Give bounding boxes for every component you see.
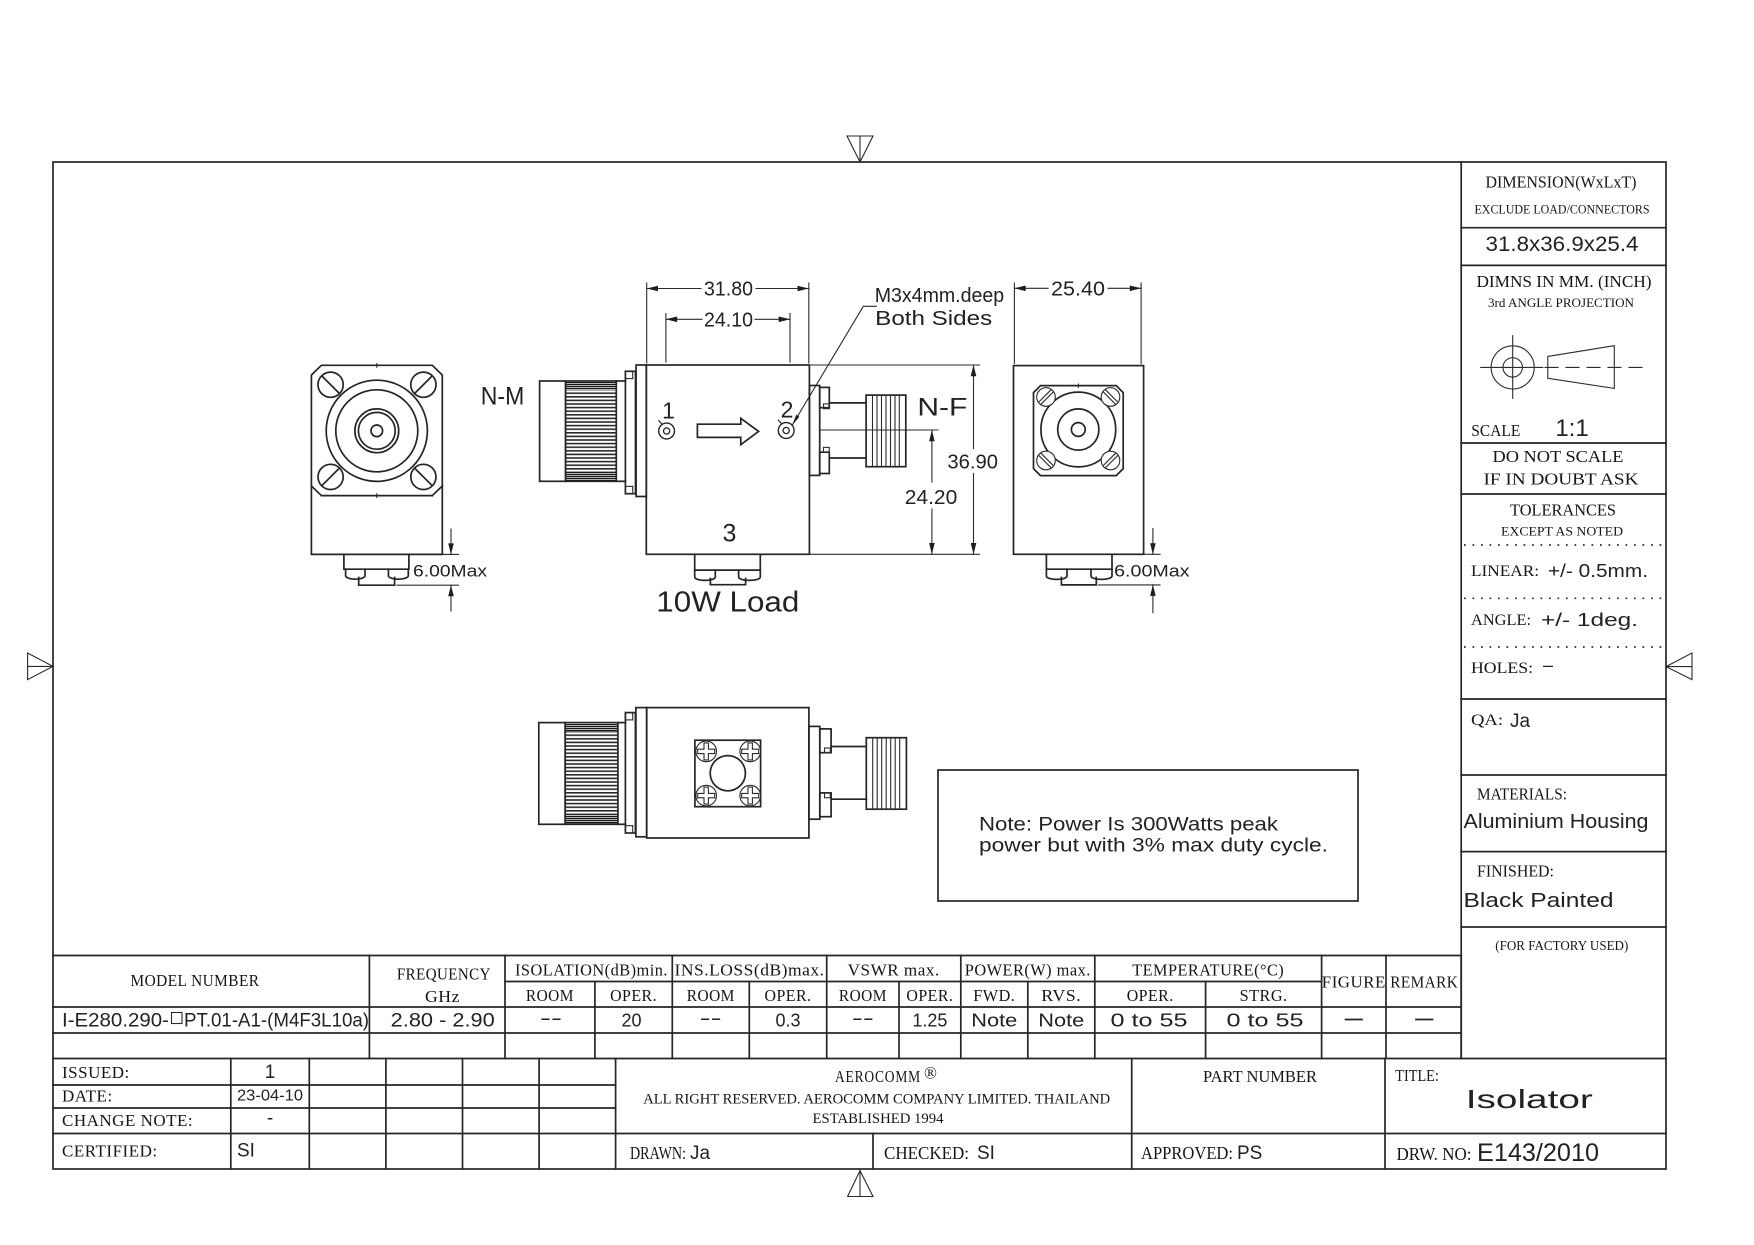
svg-text:SI: SI <box>977 1143 995 1164</box>
svg-text:3rd ANGLE PROJECTION: 3rd ANGLE PROJECTION <box>1488 295 1635 310</box>
svg-text:DO NOT SCALE: DO NOT SCALE <box>1493 447 1624 466</box>
svg-text:36.90: 36.90 <box>947 452 998 474</box>
svg-text:RVS.: RVS. <box>1041 986 1081 1005</box>
svg-text:VSWR max.: VSWR max. <box>848 960 940 979</box>
svg-text:TITLE:: TITLE: <box>1395 1066 1439 1085</box>
svg-text:SCALE: SCALE <box>1471 421 1520 440</box>
svg-text:Isolator: Isolator <box>1466 1084 1594 1114</box>
svg-text:OPER.: OPER. <box>765 986 812 1005</box>
svg-text:+/- 1deg.: +/- 1deg. <box>1541 610 1638 630</box>
svg-text:0 to 55: 0 to 55 <box>1111 1011 1188 1031</box>
svg-text:--: -- <box>540 1009 562 1030</box>
svg-text:FREQUENCY: FREQUENCY <box>397 965 491 984</box>
svg-text:CHANGE NOTE:: CHANGE NOTE: <box>62 1111 193 1130</box>
svg-text:MODEL NUMBER: MODEL NUMBER <box>131 971 260 990</box>
svg-text:1.25: 1.25 <box>912 1011 947 1031</box>
svg-text:CHECKED:: CHECKED: <box>884 1143 969 1163</box>
svg-text:FIGURE: FIGURE <box>1322 973 1386 992</box>
svg-text:PART NUMBER: PART NUMBER <box>1203 1067 1318 1086</box>
svg-text:GHz: GHz <box>425 987 460 1006</box>
svg-text:LINEAR:: LINEAR: <box>1471 563 1539 580</box>
svg-text:DRAWN:: DRAWN: <box>630 1143 686 1163</box>
svg-text:0 to 55: 0 to 55 <box>1227 1011 1304 1031</box>
svg-text:Both Sides: Both Sides <box>875 308 992 330</box>
svg-text:ISOLATION(dB)min.: ISOLATION(dB)min. <box>515 960 668 979</box>
svg-text:Note: Note <box>1038 1011 1084 1031</box>
svg-text:25.40: 25.40 <box>1051 279 1105 301</box>
svg-text:24.20: 24.20 <box>905 487 958 509</box>
svg-text:IF IN DOUBT ASK: IF IN DOUBT ASK <box>1484 470 1639 489</box>
svg-text:Ja: Ja <box>1510 711 1531 732</box>
svg-text:Black Painted: Black Painted <box>1464 890 1614 912</box>
svg-text:0.3: 0.3 <box>775 1011 800 1031</box>
svg-text:ESTABLISHED 1994: ESTABLISHED 1994 <box>813 1111 944 1127</box>
svg-text:MATERIALS:: MATERIALS: <box>1477 785 1567 804</box>
svg-text:–: – <box>1543 655 1553 675</box>
svg-text:31.8x36.9x25.4: 31.8x36.9x25.4 <box>1486 233 1639 256</box>
svg-text:Note: Note <box>971 1011 1017 1031</box>
svg-text:DRW. NO:: DRW. NO: <box>1397 1144 1472 1164</box>
svg-text:DATE:: DATE: <box>62 1087 113 1106</box>
svg-text:FINISHED:: FINISHED: <box>1477 861 1554 880</box>
svg-text:10W Load: 10W Load <box>656 587 799 619</box>
svg-text:31.80: 31.80 <box>704 279 753 301</box>
svg-text:I-E280.290-: I-E280.290- <box>62 1011 169 1032</box>
svg-text:TEMPERATURE(°C): TEMPERATURE(°C) <box>1132 960 1284 979</box>
svg-text:1: 1 <box>265 1062 276 1083</box>
svg-text:3: 3 <box>723 520 737 548</box>
svg-text:OPER.: OPER. <box>610 986 657 1005</box>
svg-text:EXCLUDE LOAD/CONNECTORS: EXCLUDE LOAD/CONNECTORS <box>1475 202 1650 217</box>
svg-text:2.80 - 2.90: 2.80 - 2.90 <box>391 1011 495 1032</box>
svg-text:ISSUED:: ISSUED: <box>62 1063 130 1082</box>
svg-text:--: -- <box>852 1009 874 1030</box>
svg-text:+/- 0.5mm.: +/- 0.5mm. <box>1548 561 1648 581</box>
svg-text:PT.01-A1-(M4F3L10a): PT.01-A1-(M4F3L10a) <box>184 1011 369 1032</box>
svg-text:1:1: 1:1 <box>1555 415 1588 442</box>
svg-text:20: 20 <box>621 1011 641 1031</box>
svg-text:ALL RIGHT RESERVED. AEROCOM: ALL RIGHT RESERVED. AEROCOMM COMPANY LIM… <box>643 1091 1110 1107</box>
svg-text:EXCEPT AS NOTED: EXCEPT AS NOTED <box>1501 524 1623 539</box>
svg-text:Note: Power Is 300Watts peak: Note: Power Is 300Watts peak <box>979 815 1279 836</box>
svg-text:6.00Max: 6.00Max <box>413 562 488 581</box>
svg-text:23-04-10: 23-04-10 <box>237 1088 303 1105</box>
svg-text:INS.LOSS(dB)max.: INS.LOSS(dB)max. <box>675 960 825 979</box>
svg-text:E143/2010: E143/2010 <box>1477 1139 1599 1167</box>
svg-text:SI: SI <box>237 1141 255 1162</box>
svg-text:®: ® <box>924 1063 937 1082</box>
svg-text:1: 1 <box>662 398 675 424</box>
svg-text:CERTIFIED:: CERTIFIED: <box>62 1142 158 1161</box>
svg-text:REMARK: REMARK <box>1390 973 1458 992</box>
svg-text:DIMENSION(WxLxT): DIMENSION(WxLxT) <box>1486 173 1637 192</box>
svg-text:APPROVED:: APPROVED: <box>1141 1143 1233 1163</box>
svg-text:power but with 3% max duty cyc: power but with 3% max duty cycle. <box>979 836 1328 857</box>
svg-text:24.10: 24.10 <box>704 310 753 332</box>
svg-text:Ja: Ja <box>690 1143 711 1164</box>
svg-text:6.00Max: 6.00Max <box>1114 562 1190 581</box>
svg-text:M3x4mm.deep: M3x4mm.deep <box>875 285 1005 307</box>
svg-text:-: - <box>267 1108 273 1129</box>
svg-text:N-M: N-M <box>481 383 525 411</box>
svg-text:OPER.: OPER. <box>1127 986 1174 1005</box>
svg-text:OPER.: OPER. <box>906 986 953 1005</box>
svg-text:TOLERANCES: TOLERANCES <box>1510 501 1616 520</box>
svg-text:(FOR FACTORY USED): (FOR FACTORY USED) <box>1495 938 1628 953</box>
svg-text:AEROCOMM: AEROCOMM <box>835 1067 921 1086</box>
svg-text:ROOM: ROOM <box>526 986 574 1005</box>
svg-text:STRG.: STRG. <box>1240 986 1288 1005</box>
svg-text:FWD.: FWD. <box>973 986 1015 1005</box>
svg-text:PS: PS <box>1237 1143 1262 1164</box>
svg-text:--: -- <box>700 1009 722 1030</box>
svg-text:ANGLE:: ANGLE: <box>1471 612 1531 629</box>
svg-text:QA:: QA: <box>1471 712 1503 729</box>
svg-text:N-F: N-F <box>917 394 967 422</box>
svg-text:POWER(W) max.: POWER(W) max. <box>965 960 1091 979</box>
svg-text:ROOM: ROOM <box>839 986 887 1005</box>
svg-text:ROOM: ROOM <box>687 986 735 1005</box>
svg-text:DIMNS IN MM. (INCH): DIMNS IN MM. (INCH) <box>1477 272 1652 291</box>
svg-text:Aluminium Housing: Aluminium Housing <box>1464 811 1649 833</box>
svg-text:HOLES:: HOLES: <box>1471 660 1533 677</box>
svg-text:2: 2 <box>781 397 794 423</box>
